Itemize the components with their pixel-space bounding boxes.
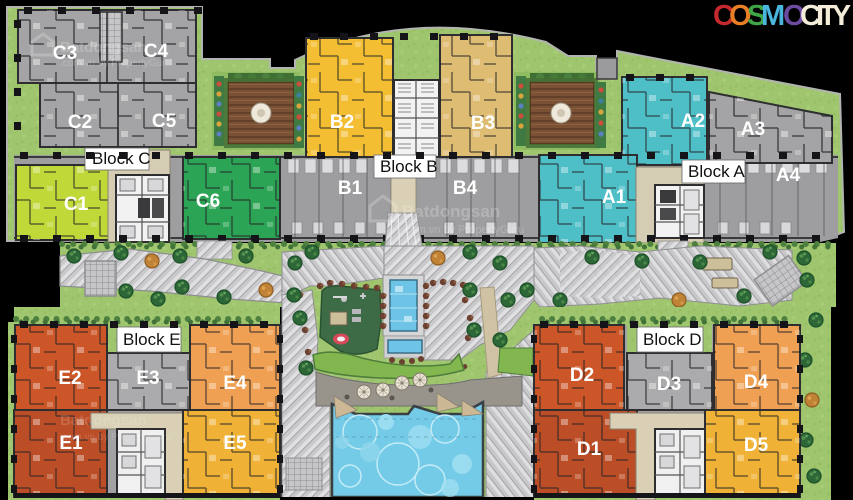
svg-text:C6: C6	[196, 191, 220, 212]
svg-text:A4: A4	[776, 165, 801, 186]
svg-text:D2: D2	[570, 365, 594, 386]
svg-text:.com.vn by PropertyGuru: .com.vn by PropertyGuru	[60, 432, 171, 443]
svg-text:B2: B2	[330, 112, 354, 133]
svg-text:C1: C1	[64, 194, 89, 215]
svg-text:Block A: Block A	[688, 162, 745, 181]
svg-text:Batdongsan: Batdongsan	[60, 39, 147, 56]
svg-text:A3: A3	[741, 119, 765, 140]
svg-text:CITY: CITY	[800, 0, 851, 32]
svg-text:A2: A2	[681, 111, 705, 132]
svg-text:E4: E4	[223, 373, 247, 394]
svg-text:.com.vn by PropertyGuru: .com.vn by PropertyGuru	[402, 224, 524, 236]
svg-text:D1: D1	[577, 439, 602, 460]
svg-text:E5: E5	[223, 433, 247, 454]
svg-text:Block E: Block E	[123, 330, 181, 349]
svg-text:C2: C2	[68, 112, 92, 133]
svg-text:Batdongsan: Batdongsan	[402, 202, 500, 221]
svg-text:D3: D3	[657, 374, 681, 395]
svg-text:C5: C5	[152, 111, 177, 132]
svg-text:E2: E2	[58, 368, 81, 389]
svg-text:M: M	[761, 0, 785, 32]
svg-text:B4: B4	[453, 178, 478, 199]
svg-text:Block D: Block D	[643, 330, 702, 349]
svg-text:E3: E3	[136, 368, 159, 389]
svg-text:A1: A1	[602, 187, 627, 208]
svg-text:.com.vn by PropertyGuru: .com.vn by PropertyGuru	[60, 58, 171, 69]
svg-text:D5: D5	[744, 435, 769, 456]
svg-text:B3: B3	[471, 113, 495, 134]
svg-text:B1: B1	[338, 178, 363, 199]
svg-text:Block B: Block B	[380, 157, 438, 176]
svg-text:D4: D4	[744, 372, 769, 393]
svg-text:Batdongsan: Batdongsan	[60, 412, 147, 429]
